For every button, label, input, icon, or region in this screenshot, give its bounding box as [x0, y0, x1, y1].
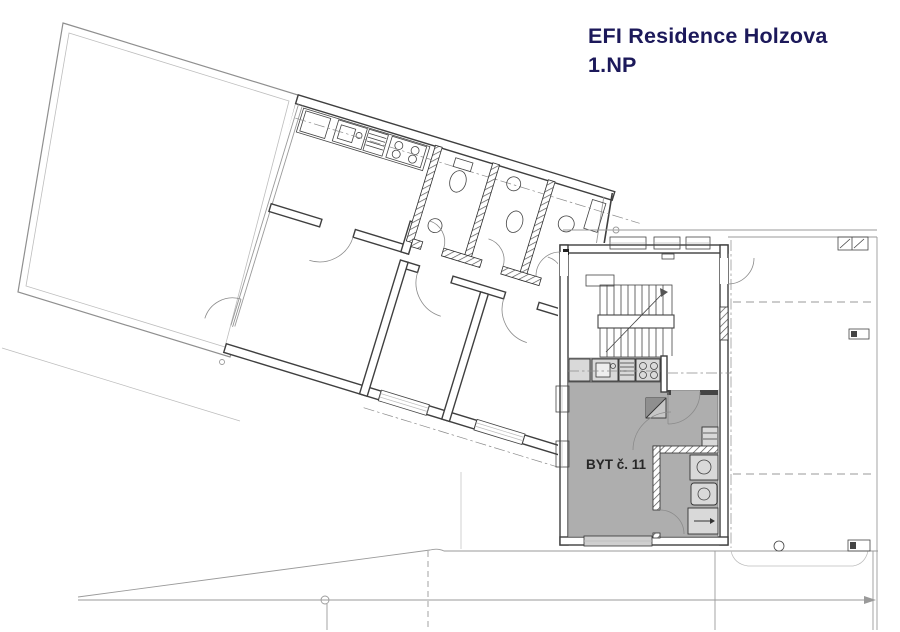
drain-symbol — [849, 329, 869, 339]
shower-symbol — [688, 508, 718, 534]
vent-grille-symbol — [838, 237, 868, 250]
floor-plan-page: BYT č. 11 EFI Residence Holzova 1.NP — [0, 0, 900, 632]
stove-symbol — [636, 359, 660, 381]
direction-arrow-icon — [864, 596, 876, 604]
door-arc — [728, 258, 754, 284]
plan-title-line1: EFI Residence Holzova — [588, 22, 828, 51]
toilet-symbol — [691, 483, 717, 505]
manhole-symbol — [774, 541, 784, 551]
drain-symbol — [848, 540, 870, 551]
plan-title-line2: 1.NP — [588, 51, 828, 80]
apartment-byt-11: BYT č. 11 — [556, 356, 731, 546]
washing-machine-symbol — [702, 427, 718, 447]
apartment-label: BYT č. 11 — [586, 457, 647, 472]
cabinet-symbol — [569, 359, 590, 381]
apartment-kitchen — [568, 359, 661, 382]
floor-plan-canvas: BYT č. 11 — [0, 0, 900, 632]
plan-title: EFI Residence Holzova 1.NP — [588, 22, 828, 80]
dishwasher-symbol — [619, 359, 635, 381]
